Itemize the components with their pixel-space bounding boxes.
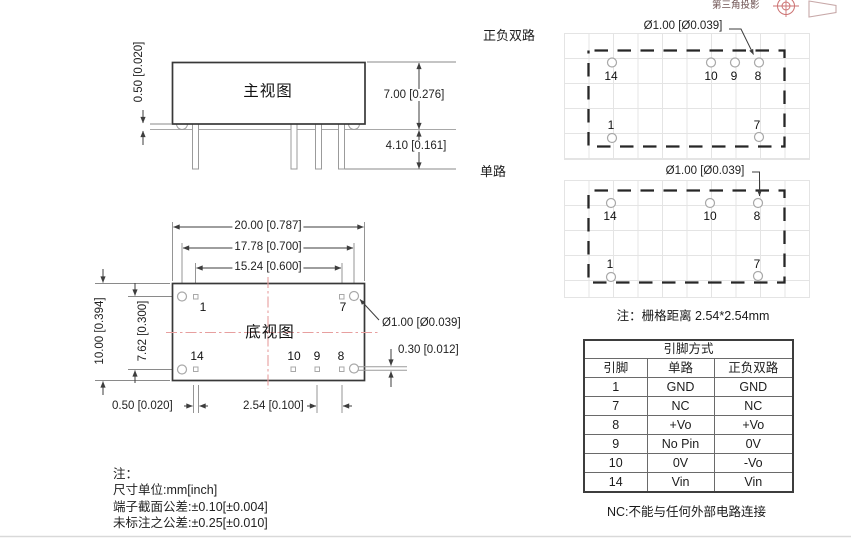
bv-pin-label-1: 1 bbox=[200, 301, 207, 314]
bv-pin-label-9: 9 bbox=[314, 350, 321, 363]
front-height-dim: 7.00 [0.276] bbox=[382, 89, 447, 101]
pin-table-title: 引脚方式 bbox=[584, 340, 793, 359]
bv-pin-label-7: 7 bbox=[340, 301, 347, 314]
note-line: 尺寸单位:mm[inch] bbox=[113, 482, 268, 498]
third-angle-projection-label: 第三角投影 bbox=[712, 1, 760, 11]
single-hole-dia-dim: Ø1.00 [Ø0.039] bbox=[666, 165, 745, 177]
pin-table-col-pin: 引脚 bbox=[584, 359, 647, 378]
pin-table-col-dual: 正负双路 bbox=[714, 359, 793, 378]
pin-table-row: 14 Vin Vin bbox=[584, 473, 793, 493]
front-standoff-dim: 0.50 [0.020] bbox=[133, 42, 145, 103]
bv-pin-label-14: 14 bbox=[190, 350, 203, 363]
pin-table-row: 1 GND GND bbox=[584, 378, 793, 397]
bv-hole-dia-dim: Ø1.00 [Ø0.039] bbox=[382, 317, 461, 329]
pin-table-row: 10 0V -Vo bbox=[584, 454, 793, 473]
bv-pin-label-8: 8 bbox=[338, 350, 345, 363]
bottom-view-title: 底视图 bbox=[245, 325, 295, 341]
single-pin-label-8: 8 bbox=[754, 210, 761, 223]
datasheet-drawing-page: 第三角投影 主视图 0.50 [0.020] 7.00 [0.276] 4.10… bbox=[0, 0, 851, 540]
bv-depth-dim: 10.00 [0.394] bbox=[94, 297, 106, 364]
dual-hole-dia-dim: Ø1.00 [Ø0.039] bbox=[644, 20, 723, 32]
front-view-linework bbox=[143, 62, 456, 169]
bv-pin-thickness-dim: 0.30 [0.012] bbox=[398, 344, 459, 356]
single-pin-label-1: 1 bbox=[607, 258, 614, 271]
note-line: 未标注之公差:±0.25[±0.010] bbox=[113, 515, 268, 531]
bv-pin-span-dim: 15.24 [0.600] bbox=[232, 261, 303, 273]
pin-table-row: 9 No Pin 0V bbox=[584, 435, 793, 454]
bv-row-span-dim: 7.62 [0.300] bbox=[137, 301, 149, 362]
bv-standoff-span-dim: 17.78 [0.700] bbox=[232, 241, 303, 253]
bv-pitch-dim: 2.54 [0.100] bbox=[243, 400, 304, 412]
dual-pin-label-7: 7 bbox=[754, 119, 761, 132]
single-layout-label: 单路 bbox=[480, 165, 506, 179]
dual-pin-label-10: 10 bbox=[704, 70, 717, 83]
single-pin-label-10: 10 bbox=[703, 210, 716, 223]
dual-pin-label-14: 14 bbox=[604, 70, 617, 83]
dual-pin-label-1: 1 bbox=[608, 119, 615, 132]
pin-table-header-row: 引脚 单路 正负双路 bbox=[584, 359, 793, 378]
pin-table-row: 8 +Vo +Vo bbox=[584, 416, 793, 435]
single-pin-label-14: 14 bbox=[603, 210, 616, 223]
front-view-title: 主视图 bbox=[243, 84, 293, 100]
pin-assignment-table: 引脚方式 引脚 单路 正负双路 1 GND GND 7 NC NC 8 +Vo … bbox=[583, 339, 794, 493]
dual-pin-label-9: 9 bbox=[731, 70, 738, 83]
grid-pitch-note: 注：栅格距离 2.54*2.54mm bbox=[617, 310, 770, 323]
dual-pin-label-8: 8 bbox=[755, 70, 762, 83]
pin-table-col-single: 单路 bbox=[647, 359, 714, 378]
bv-edge-offset-dim: 0.50 [0.020] bbox=[112, 400, 173, 412]
front-pin-length-dim: 4.10 [0.161] bbox=[384, 140, 449, 152]
third-angle-projection-icon bbox=[773, 0, 836, 17]
bv-width-dim: 20.00 [0.787] bbox=[232, 220, 303, 232]
note-line: 端子截面公差:±0.10[±0.004] bbox=[113, 499, 268, 515]
general-notes: 注： 尺寸单位:mm[inch] 端子截面公差:±0.10[±0.004] 未标… bbox=[113, 466, 268, 532]
dual-layout-label: 正负双路 bbox=[483, 29, 535, 43]
notes-title: 注： bbox=[113, 466, 268, 482]
bv-pin-label-10: 10 bbox=[287, 350, 300, 363]
nc-note: NC:不能与任何外部电路连接 bbox=[607, 501, 766, 520]
pin-table-row: 7 NC NC bbox=[584, 397, 793, 416]
single-pin-label-7: 7 bbox=[754, 258, 761, 271]
